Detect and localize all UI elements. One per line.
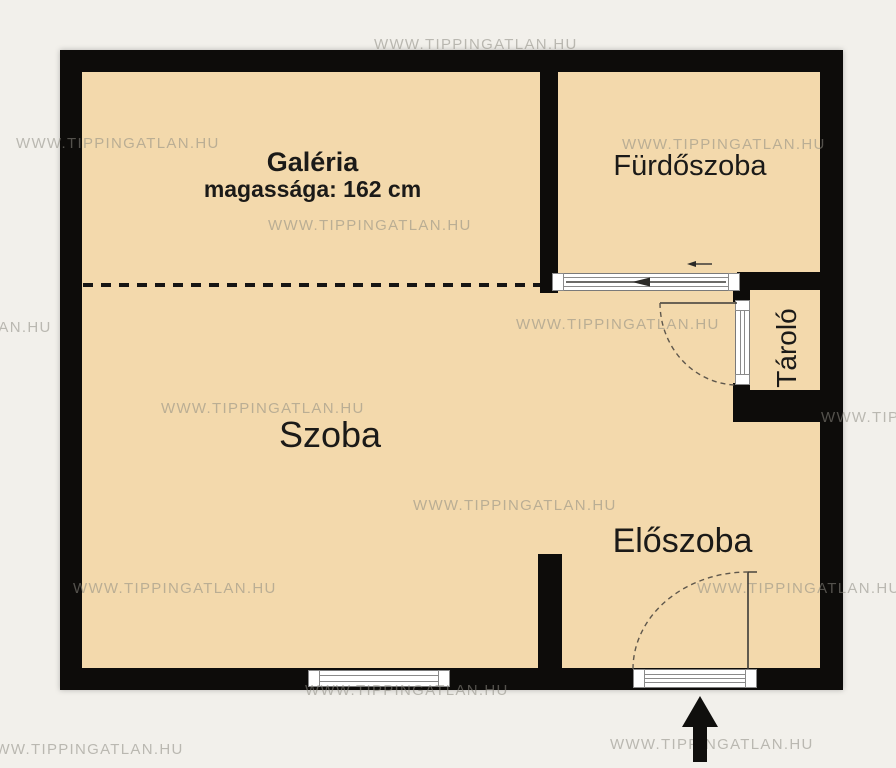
tarolo-door-bottom-post	[735, 374, 750, 385]
szoba-label: Szoba	[225, 414, 435, 456]
tarolo-door-top-post	[735, 300, 750, 311]
galeria-dashed-edge	[83, 283, 540, 287]
entrance-sill-line	[634, 674, 756, 675]
entrance-sill-line	[634, 682, 756, 683]
tarolo-door-frame-line	[740, 301, 741, 384]
sliding-door-left-post	[552, 273, 564, 291]
wall-szoba-eloszoba-stub	[538, 554, 562, 668]
sliding-door-right-post	[728, 273, 740, 291]
sliding-door-frame-line	[553, 277, 739, 278]
galeria-label: Galéria magassága: 162 cm	[140, 148, 485, 202]
watermark-text: WWW.TIPPINGATLAN.HU	[374, 36, 578, 53]
watermark-text: WWW.TIPPINGATLAN.HU	[821, 409, 896, 426]
watermark-text: WWW.TIPPINGATLAN.HU	[0, 741, 184, 758]
floor-plan: WWW.TIPPINGATLAN.HUWWW.TIPPINGATLAN.HUWW…	[0, 0, 896, 768]
entrance-sill-line	[634, 678, 756, 679]
entrance-left-post	[633, 669, 645, 688]
galeria-height-note: magassága: 162 cm	[140, 176, 485, 202]
tarolo-door-frame	[735, 300, 750, 385]
entrance-door-sill	[633, 669, 757, 688]
watermark-text: WWW.TIPPINGATLAN.HU	[610, 736, 814, 753]
watermark-text: WWW.TIPPINGATLAN.HU	[516, 316, 720, 333]
watermark-text: WWW.TIPPINGATLAN.HU	[305, 682, 509, 699]
entrance-right-post	[745, 669, 757, 688]
tarolo-door-frame-line	[744, 301, 745, 384]
eloszoba-label: Előszoba	[590, 522, 775, 561]
sliding-door-frame-line	[553, 286, 739, 287]
watermark-text: WWW.TIPPINGATLAN.HU	[0, 319, 52, 336]
wall-galeria-furdoszoba	[540, 72, 558, 293]
watermark-text: WWW.TIPPINGATLAN.HU	[73, 580, 277, 597]
watermark-text: WWW.TIPPINGATLAN.HU	[413, 497, 617, 514]
furdoszoba-label: Fürdőszoba	[575, 150, 805, 183]
galeria-name: Galéria	[140, 148, 485, 176]
watermark-text: WWW.TIPPINGATLAN.HU	[268, 217, 472, 234]
window-frame-line	[309, 675, 449, 676]
watermark-text: WWW.TIPPINGATLAN.HU	[697, 580, 896, 597]
tarolo-label: Tároló	[771, 288, 803, 408]
sliding-door-furdoszoba	[552, 273, 740, 291]
